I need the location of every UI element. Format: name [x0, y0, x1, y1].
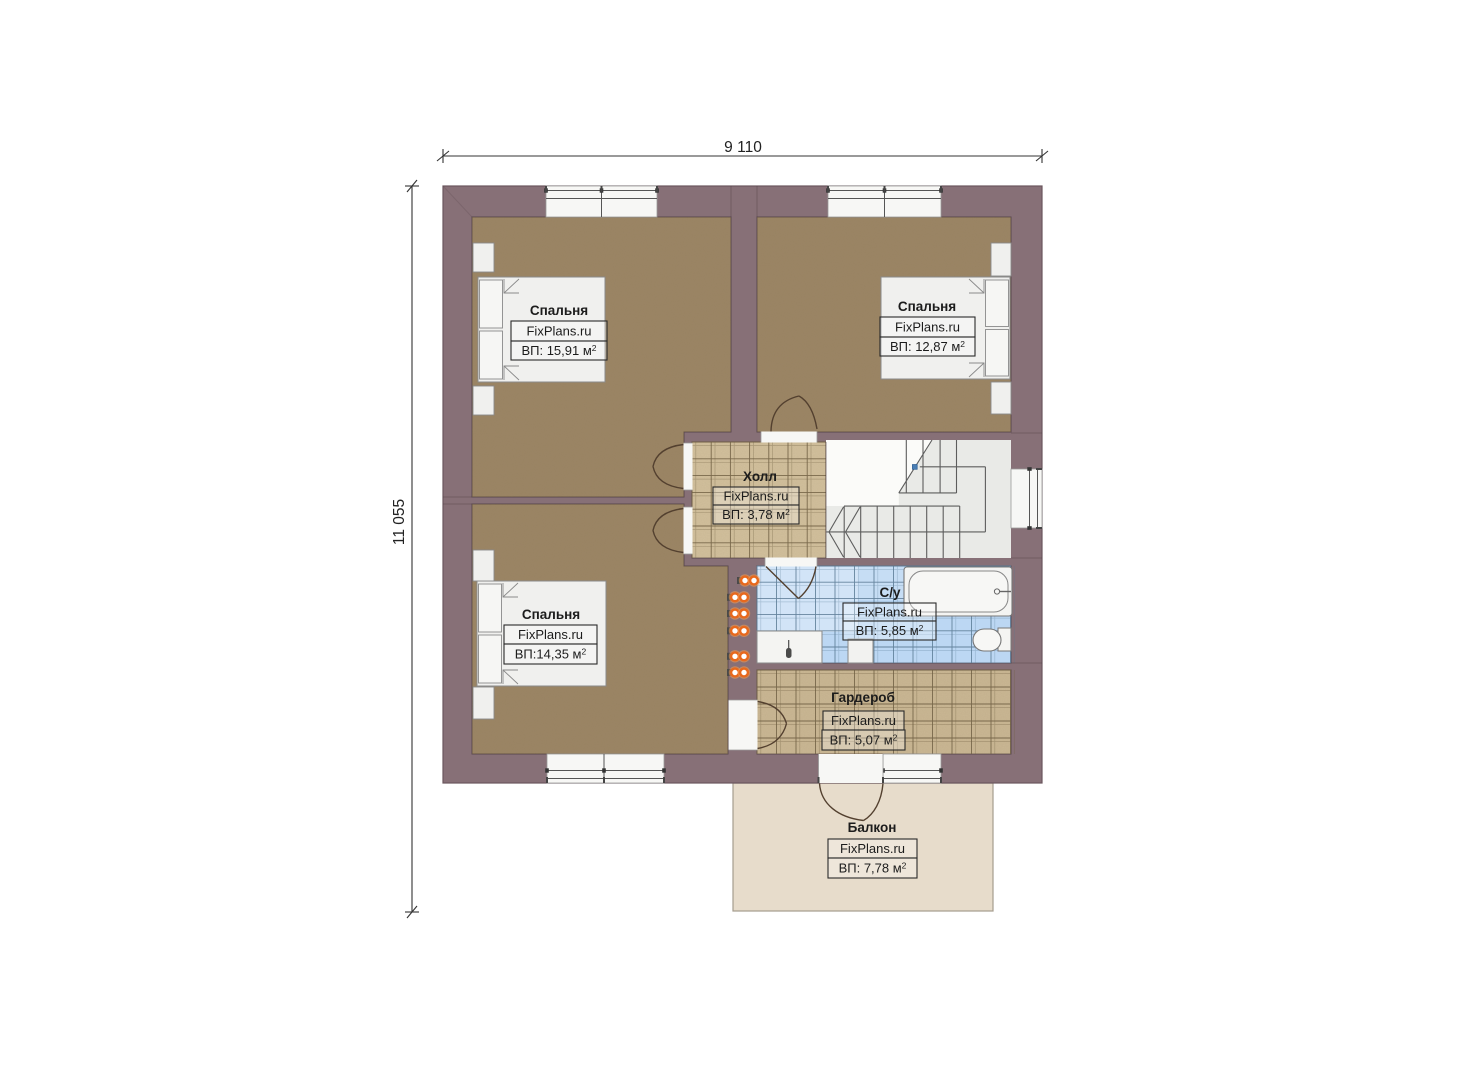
svg-text:FixPlans.ru: FixPlans.ru	[840, 841, 905, 856]
svg-text:FixPlans.ru: FixPlans.ru	[857, 605, 922, 620]
svg-text:ВП: 7,78 м2: ВП: 7,78 м2	[839, 861, 907, 876]
svg-text:FixPlans.ru: FixPlans.ru	[895, 320, 960, 335]
svg-text:ВП:14,35 м2: ВП:14,35 м2	[515, 647, 587, 662]
svg-text:Гардероб: Гардероб	[831, 690, 895, 705]
svg-text:FixPlans.ru: FixPlans.ru	[723, 489, 788, 504]
svg-text:ВП: 15,91 м2: ВП: 15,91 м2	[521, 343, 596, 358]
svg-text:FixPlans.ru: FixPlans.ru	[831, 713, 896, 728]
svg-text:FixPlans.ru: FixPlans.ru	[526, 324, 591, 339]
svg-text:ВП: 12,87 м2: ВП: 12,87 м2	[890, 339, 965, 354]
svg-text:9 110: 9 110	[724, 139, 762, 156]
svg-text:Холл: Холл	[743, 469, 777, 484]
svg-text:Балкон: Балкон	[848, 820, 897, 835]
svg-text:С/у: С/у	[879, 585, 901, 600]
svg-text:Спальня: Спальня	[898, 299, 956, 314]
svg-text:11 055: 11 055	[391, 499, 408, 545]
svg-text:ВП: 5,07 м2: ВП: 5,07 м2	[830, 733, 898, 748]
svg-text:ВП: 3,78 м2: ВП: 3,78 м2	[722, 507, 790, 522]
svg-text:Спальня: Спальня	[530, 303, 588, 318]
svg-text:Спальня: Спальня	[522, 607, 580, 622]
svg-text:FixPlans.ru: FixPlans.ru	[518, 627, 583, 642]
svg-text:ВП: 5,85 м2: ВП: 5,85 м2	[856, 623, 924, 638]
